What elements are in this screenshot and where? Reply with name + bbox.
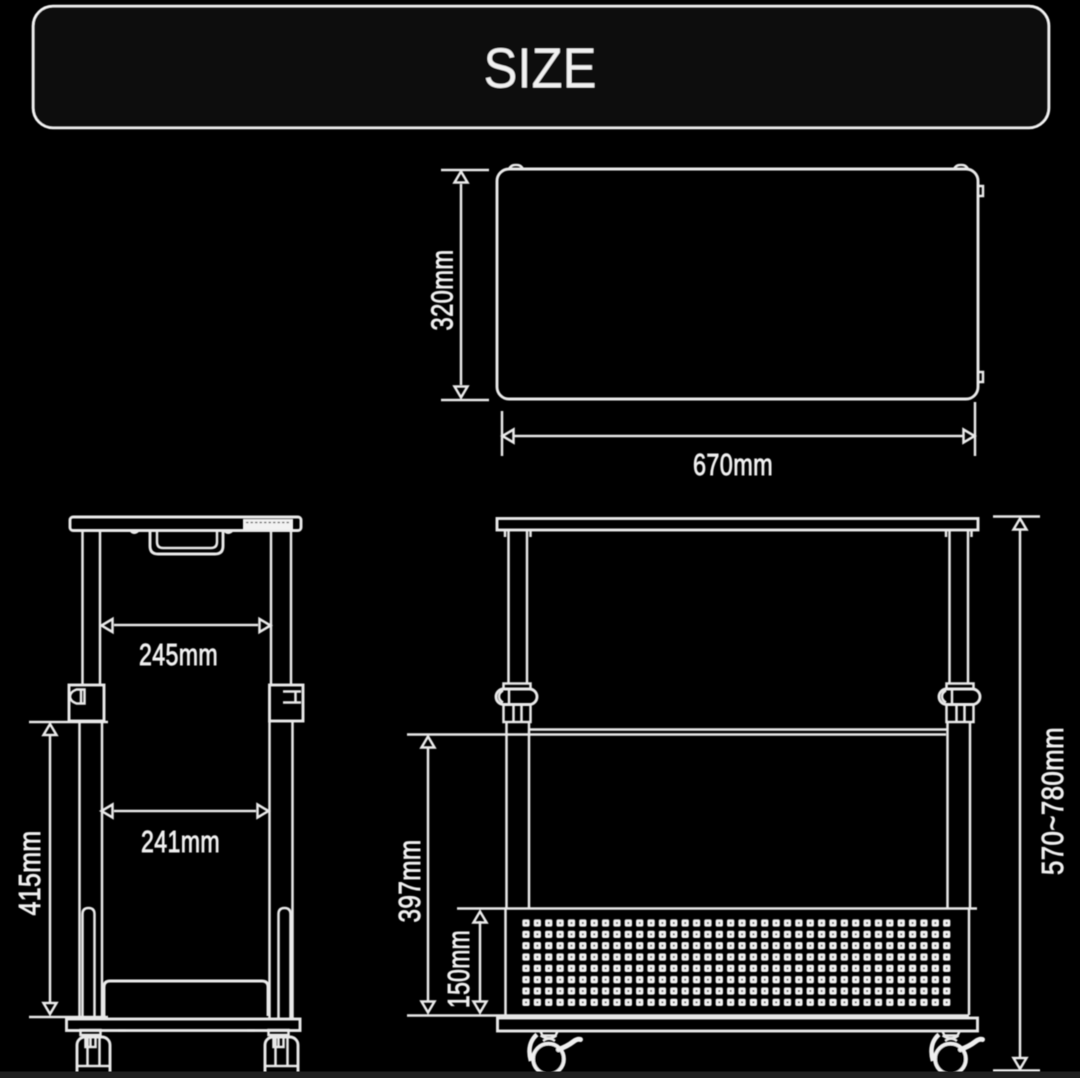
svg-text:670mm: 670mm: [693, 447, 773, 482]
svg-text:SIZE: SIZE: [484, 37, 597, 101]
svg-text:241mm: 241mm: [141, 824, 220, 859]
svg-text:415mm: 415mm: [12, 831, 47, 916]
svg-text:320mm: 320mm: [425, 250, 460, 331]
svg-text:150mm: 150mm: [441, 930, 476, 1008]
svg-text:245mm: 245mm: [139, 637, 218, 672]
svg-text:570~780mm: 570~780mm: [1035, 727, 1070, 875]
svg-text:397mm: 397mm: [392, 840, 427, 923]
